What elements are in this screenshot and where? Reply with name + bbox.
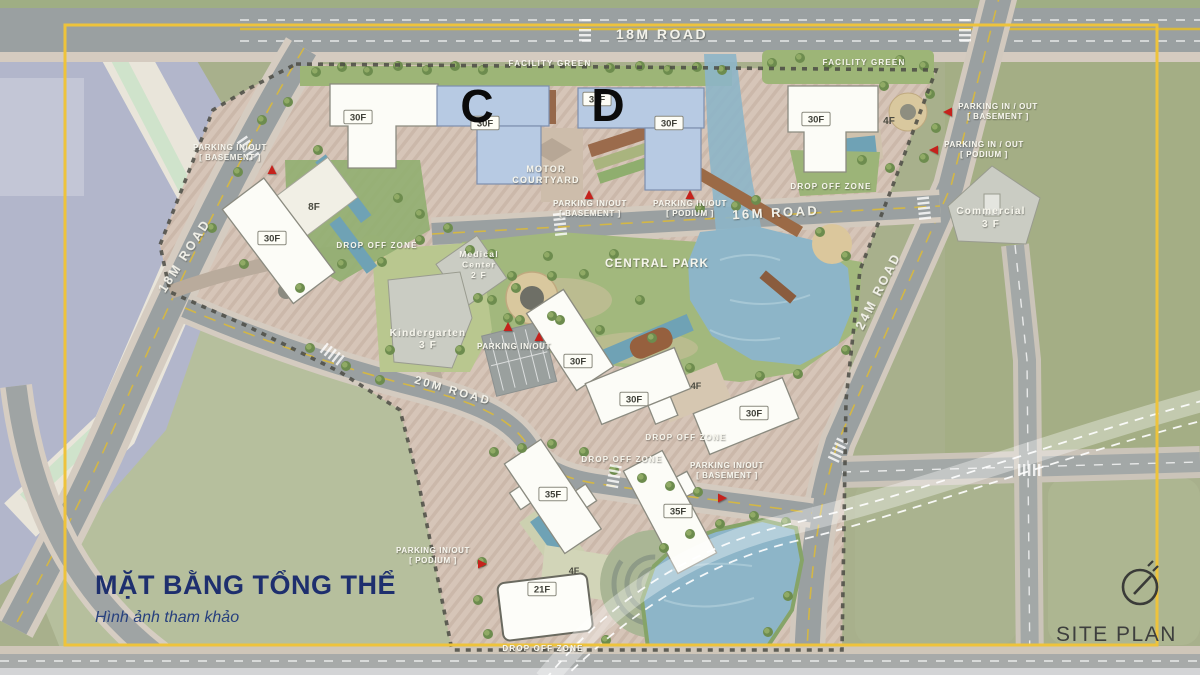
floor-text-4f: 4F	[883, 116, 895, 127]
page-subtitle: Hình ảnh tham khảo	[95, 609, 239, 626]
floor-tag-21f: 21F	[528, 582, 556, 596]
floor-tag-30f: 30F	[620, 392, 648, 406]
floor-tag-35f: 35F	[664, 504, 692, 518]
svg-text:30F: 30F	[661, 119, 678, 130]
parking-ne-basement: PARKING IN / OUT[ BASEMENT ]	[958, 102, 1038, 121]
floor-text-8f: 8F	[308, 202, 320, 213]
parking-south-basement: PARKING IN/OUT[ BASEMENT ]	[690, 461, 764, 480]
svg-text:30F: 30F	[264, 234, 281, 245]
parking-motor-basement: PARKING IN/OUT[ BASEMENT ]	[553, 199, 627, 218]
svg-text:35F: 35F	[670, 507, 687, 518]
svg-text:30F: 30F	[626, 395, 643, 406]
floor-tag-30f: 30F	[344, 110, 372, 124]
drop-off-mid-east: DROP OFF ZONE	[645, 433, 726, 442]
site-plan-canvas: 18M ROAD18M ROAD16M ROAD24M ROAD20M ROAD…	[0, 0, 1200, 675]
svg-text:30F: 30F	[570, 357, 587, 368]
facility-green-east: FACILITY GREEN	[823, 58, 906, 67]
floor-text-4f: 4F	[691, 381, 702, 391]
page-title: MẶT BẰNG TỔNG THỂ	[95, 569, 396, 600]
block-letter-d: D	[591, 79, 624, 131]
floor-tag-30f: 30F	[740, 406, 768, 420]
floor-text-4f: 4F	[569, 566, 580, 576]
svg-text:30F: 30F	[350, 113, 367, 124]
parking-nw: PARKING IN/OUT[ BASEMENT ]	[193, 143, 267, 162]
svg-text:35F: 35F	[545, 490, 562, 501]
floor-tag-30f: 30F	[802, 112, 830, 126]
road-18m-top: 18M ROAD	[616, 26, 708, 42]
drop-off-nw: DROP OFF ZONE	[336, 241, 417, 250]
svg-text:30F: 30F	[808, 115, 825, 126]
drop-off-south: DROP OFF ZONE	[502, 644, 583, 653]
facility-green-west: FACILITY GREEN	[509, 59, 592, 68]
floor-tag-30f: 30F	[258, 231, 286, 245]
floor-tag-30f: 30F	[655, 116, 683, 130]
site-plan-label: SITE PLAN	[1056, 623, 1177, 646]
site-plan-page: 18M ROAD18M ROAD16M ROAD24M ROAD20M ROAD…	[0, 0, 1200, 675]
parking-center: PARKING IN/OUT	[477, 342, 551, 351]
floor-tag-35f: 35F	[539, 487, 567, 501]
svg-text:21F: 21F	[534, 585, 551, 596]
block-letter-c: C	[460, 80, 493, 132]
facility-green-east-area	[762, 50, 934, 84]
drop-off-mid-west: DROP OFF ZONE	[581, 455, 662, 464]
central-park: CENTRAL PARK	[605, 258, 709, 270]
floor-tag-30f: 30F	[564, 354, 592, 368]
drop-off-ne: DROP OFF ZONE	[790, 182, 871, 191]
svg-text:30F: 30F	[746, 409, 763, 420]
